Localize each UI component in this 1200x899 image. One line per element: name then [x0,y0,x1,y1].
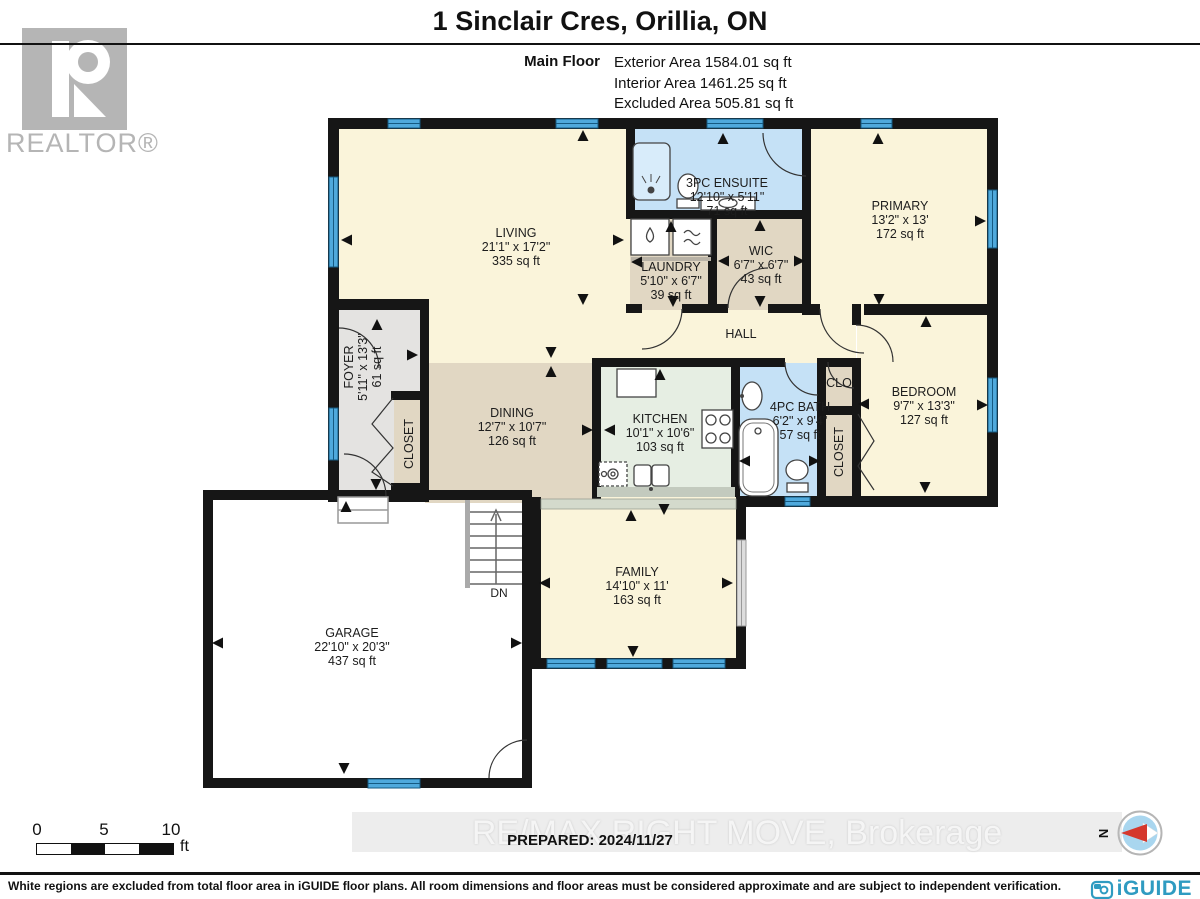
header-divider [0,43,1200,45]
iguide-logo: iGUIDE [1090,877,1192,899]
room-name: CLOSET [402,419,416,469]
room-name: LAUNDRY [640,260,702,274]
room-name: CLOSET [832,427,846,477]
room-label-bedroom: BEDROOM 9'7" x 13'3" 127 sq ft [892,385,957,427]
room-dims: 5'10" x 6'7" [640,274,702,288]
room-area: 71 sq ft [686,204,768,218]
room-name: PRIMARY [871,199,928,213]
room-area: 103 sq ft [626,440,695,454]
room-area: 43 sq ft [734,272,789,286]
floorplan-graphic [0,0,1200,899]
room-label-wic: WIC 6'7" x 6'7" 43 sq ft [734,244,789,286]
room-label-clo: CLO [826,376,852,390]
room-dims: 13'2" x 13' [871,213,928,227]
interior-area: Interior Area 1461.25 sq ft [614,74,793,95]
room-dims: 14'10" x 11' [605,579,668,593]
room-dims: 10'1" x 10'6" [626,426,695,440]
room-dims: 22'10" x 20'3" [314,640,390,654]
room-label-family: FAMILY 14'10" x 11' 163 sq ft [605,565,668,607]
room-area: 39 sq ft [640,288,702,302]
room-dims: 12'7" x 10'7" [478,420,547,434]
room-label-hall: HALL [725,327,756,341]
room-dims: 9'7" x 13'3" [892,399,957,413]
room-dims: 5'11" x 13'3" [356,333,370,401]
room-label-kitchen: KITCHEN 10'1" x 10'6" 103 sq ft [626,412,695,454]
room-area: 57 sq ft [770,428,830,442]
room-area: 163 sq ft [605,593,668,607]
room-label-garage: GARAGE 22'10" x 20'3" 437 sq ft [314,626,390,668]
room-name: FOYER [342,333,356,401]
room-name: DINING [478,406,547,420]
room-label-living: LIVING 21'1" x 17'2" 335 sq ft [482,226,551,268]
stairs-dn-label: DN [490,586,507,600]
room-area: 127 sq ft [892,413,957,427]
room-label-laundry: LAUNDRY 5'10" x 6'7" 39 sq ft [640,260,702,302]
room-name: GARAGE [314,626,390,640]
room-area: 126 sq ft [478,434,547,448]
room-name: BEDROOM [892,385,957,399]
room-dims: 21'1" x 17'2" [482,240,551,254]
room-area: 172 sq ft [871,227,928,241]
room-label-closet-foyer: CLOSET [402,419,416,469]
disclaimer-text: White regions are excluded from total fl… [8,879,1061,893]
room-label-dining: DINING 12'7" x 10'7" 126 sq ft [478,406,547,448]
room-name: KITCHEN [626,412,695,426]
room-area: 61 sq ft [370,333,384,401]
compass-north-label: N [1096,829,1111,838]
floor-label: Main Floor [0,53,600,70]
room-label-closet-bedroom: CLOSET [832,427,846,477]
room-dims: 6'2" x 9'4" [770,414,830,428]
footer-divider [0,872,1200,875]
excluded-area: Excluded Area 505.81 sq ft [614,94,793,115]
exterior-area: Exterior Area 1584.01 sq ft [614,53,793,74]
room-label-foyer: FOYER 5'11" x 13'3" 61 sq ft [342,333,384,401]
room-name: WIC [734,244,789,258]
room-dims: 12'10" x 5'11" [686,190,768,204]
room-name: 4PC BATH [770,400,830,414]
area-stats: Exterior Area 1584.01 sq ft Interior Are… [614,53,793,115]
room-label-primary: PRIMARY 13'2" x 13' 172 sq ft [871,199,928,241]
floorplan-page: 1 Sinclair Cres, Orillia, ON Main Floor … [0,0,1200,899]
room-dims: 6'7" x 6'7" [734,258,789,272]
iguide-logo-text: iGUIDE [1117,877,1192,899]
prepared-date: PREPARED: 2024/11/27 [0,832,1180,849]
room-area: 335 sq ft [482,254,551,268]
room-area: 437 sq ft [314,654,390,668]
room-label-bath: 4PC BATH 6'2" x 9'4" 57 sq ft [770,400,830,442]
room-name: FAMILY [605,565,668,579]
realtor-logo-text: REALTOR® [6,128,159,159]
page-title: 1 Sinclair Cres, Orillia, ON [0,6,1200,37]
room-name: LIVING [482,226,551,240]
room-name: 3PC ENSUITE [686,176,768,190]
iguide-camera-icon [1090,879,1114,899]
room-label-ensuite: 3PC ENSUITE 12'10" x 5'11" 71 sq ft [686,176,768,218]
